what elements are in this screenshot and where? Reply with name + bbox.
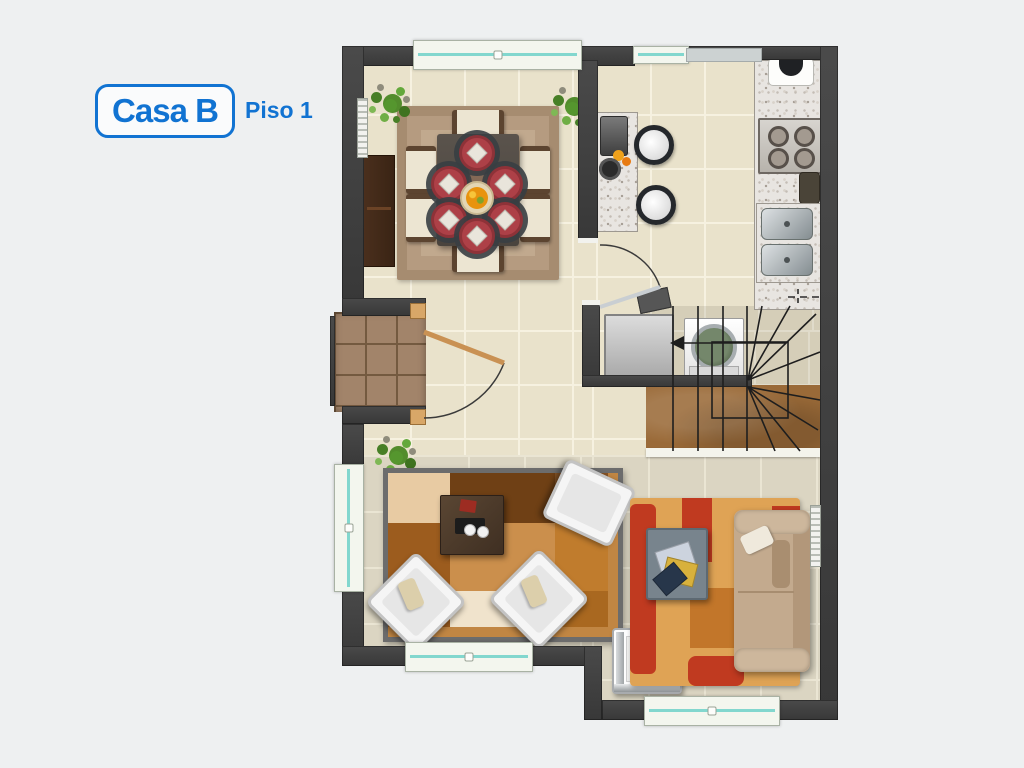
counter-appliance xyxy=(768,58,814,86)
round-tray xyxy=(599,158,621,180)
sofa-seat-divider xyxy=(738,591,794,593)
wall-kitchen-divider xyxy=(578,60,598,242)
sideboard-cabinet xyxy=(363,155,395,267)
porch-edge xyxy=(330,316,335,406)
stairs-threshold xyxy=(646,448,820,457)
place-setting xyxy=(454,213,500,259)
house-label: Casa B xyxy=(112,92,218,130)
side-table xyxy=(646,528,708,600)
window-high-strip xyxy=(686,48,762,62)
window-living-left xyxy=(405,642,533,672)
wall-bottom-right xyxy=(602,700,646,720)
wall-vent xyxy=(357,98,368,158)
entrance-porch-floor xyxy=(334,312,426,412)
coffee-machine xyxy=(600,116,628,156)
sofa-armrest xyxy=(734,648,810,672)
door-jamb xyxy=(410,303,426,319)
sofa-cushion xyxy=(772,540,790,588)
staircase-lower-flight xyxy=(646,385,820,451)
refrigerator xyxy=(604,314,674,380)
burner xyxy=(794,148,815,169)
floor-plan-page: Casa B Piso 1 xyxy=(0,0,1024,768)
window-kitchen xyxy=(633,46,689,64)
bar-stool xyxy=(634,125,674,165)
wall-end-cap xyxy=(582,300,600,305)
sideboard-shelf xyxy=(367,207,391,210)
floor-label: Piso 1 xyxy=(245,97,313,124)
fruit xyxy=(622,157,631,166)
wall-laundry-bottom xyxy=(582,375,752,387)
burner xyxy=(768,126,789,147)
sofa-back xyxy=(793,514,810,668)
wall-bottom-left xyxy=(342,646,410,666)
wall-bottom-right xyxy=(776,700,838,720)
wall-step xyxy=(584,646,602,720)
cup xyxy=(464,524,476,536)
wall-right xyxy=(820,46,838,720)
wall-end-cap xyxy=(578,238,598,243)
washer-door xyxy=(691,324,737,370)
washing-machine xyxy=(684,318,744,380)
sink-basin xyxy=(761,208,813,240)
sofa-armrest xyxy=(734,510,810,534)
cutting-board xyxy=(799,172,820,204)
sink-counter xyxy=(756,203,822,283)
burner xyxy=(794,126,815,147)
window-left xyxy=(334,464,364,592)
stove xyxy=(758,118,822,174)
book xyxy=(459,499,477,513)
wall-left-upper xyxy=(342,46,364,304)
bar-stool xyxy=(636,185,676,225)
window-living-right xyxy=(644,696,780,726)
fruit-bowl xyxy=(460,181,494,215)
wall-radiator xyxy=(810,505,821,567)
door-jamb xyxy=(410,409,426,425)
cup xyxy=(477,526,489,538)
burner xyxy=(768,148,789,169)
house-label-badge: Casa B xyxy=(95,84,235,138)
wall-left-lower xyxy=(342,424,364,468)
sofa xyxy=(734,510,810,672)
sink-basin xyxy=(761,244,813,276)
window-dining xyxy=(413,40,582,70)
